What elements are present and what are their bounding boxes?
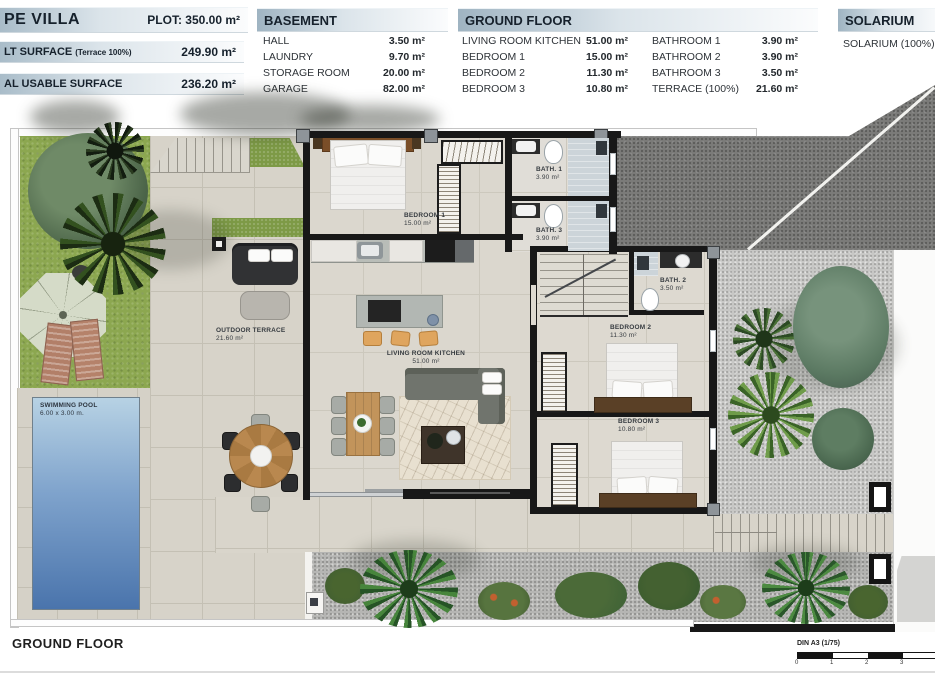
scale-segment <box>868 653 903 658</box>
island-sink <box>427 314 439 326</box>
wall <box>709 246 717 514</box>
sofa-pillow <box>271 249 293 262</box>
wardrobe <box>441 140 503 164</box>
wall <box>505 131 512 252</box>
wall <box>303 234 523 240</box>
scale-tick: 3 <box>900 660 903 666</box>
bath3-toilet <box>544 204 563 228</box>
title-bar: PE VILLA PLOT: 350.00 m² <box>0 7 248 33</box>
list-item: BEDROOM 310.80 m² <box>462 83 628 99</box>
shower-fixture <box>596 141 607 155</box>
dining-chair <box>331 396 347 414</box>
bedroom1-label: BEDROOM 1 15.00 m² <box>404 212 445 229</box>
strip-palm-bush <box>360 550 458 628</box>
staircase <box>540 254 628 317</box>
dining-chair <box>379 396 395 414</box>
scale-segment <box>798 653 833 658</box>
terrace-lamp-inner <box>216 241 222 247</box>
table-vase <box>446 430 461 445</box>
floor-title: GROUND FLOOR <box>12 636 124 651</box>
strip-palm-bush <box>762 552 850 624</box>
bath2-toilet <box>641 288 659 311</box>
wall <box>609 131 617 256</box>
solarium-title: SOLARIUM <box>845 13 914 28</box>
wall-pillar <box>424 129 438 143</box>
plot-value: PLOT: 350.00 m² <box>147 13 240 27</box>
pool-label: SWIMMING POOL 6.00 x 3.00 m. <box>40 402 98 419</box>
kitchen-cabinet <box>389 240 423 262</box>
scale-segment <box>903 653 935 658</box>
island-cooktop <box>368 300 401 322</box>
bed-bench <box>594 397 692 413</box>
flower-bush <box>478 582 530 620</box>
kitchen-sink-basin <box>361 245 379 256</box>
driveway-seam <box>747 86 935 250</box>
floor-plan-sheet: PE VILLA PLOT: 350.00 m² LT SURFACE (Ter… <box>0 0 935 682</box>
dining-chair <box>331 438 347 456</box>
basement-list: HALL3.50 m² LAUNDRY9.70 m² STORAGE ROOM2… <box>263 35 425 99</box>
bath3-label: BATH. 3 3.90 m² <box>536 227 562 244</box>
tv-screen <box>430 492 510 494</box>
scale-bar <box>797 652 935 659</box>
strip-bush <box>848 585 888 619</box>
parasol-pole <box>59 311 67 319</box>
villa-title: PE VILLA <box>4 11 80 29</box>
page-bottom-rule <box>0 671 935 673</box>
plot-boundary-bottom <box>10 619 694 627</box>
wall <box>303 131 621 138</box>
window <box>610 153 616 175</box>
driveway <box>616 85 935 250</box>
list-item: HALL3.50 m² <box>263 35 425 51</box>
terrace-label: OUTDOOR TERRACE 21.60 m² <box>216 327 285 344</box>
strip-bush <box>325 568 365 604</box>
scale-tick: 2 <box>865 660 868 666</box>
patio-chair <box>251 496 270 512</box>
dining-chair <box>379 438 395 456</box>
bath1-toilet <box>544 140 563 164</box>
ground-floor-col1: LIVING ROOM KITCHEN51.00 m² BEDROOM 115.… <box>462 35 628 99</box>
list-item: STORAGE ROOM20.00 m² <box>263 67 425 83</box>
utility-box-inner <box>310 598 318 606</box>
window <box>710 330 716 352</box>
bath2-basin <box>675 254 690 268</box>
kitchen-stove <box>425 240 455 262</box>
wardrobe <box>541 352 567 413</box>
built-surface-note: (Terrace 100%) <box>75 48 131 57</box>
dining-chair <box>379 417 395 435</box>
wardrobe <box>551 443 578 507</box>
window <box>710 428 716 450</box>
living-label: LIVING ROOM KITCHEN 51.00 m² <box>378 350 474 367</box>
stair-rail <box>583 254 584 315</box>
scale-segment <box>833 653 868 658</box>
basement-title: BASEMENT <box>264 13 337 28</box>
strip-bush <box>638 562 700 610</box>
yucca-plant <box>728 372 814 458</box>
window <box>610 207 616 232</box>
bed-pillow <box>333 143 369 167</box>
wall <box>629 310 704 315</box>
bath3-basin <box>516 205 536 216</box>
solarium-item: SOLARIUM (100%) <box>843 38 935 50</box>
glass-wall <box>310 492 405 497</box>
planter-box <box>869 482 891 512</box>
planter-box <box>869 554 891 584</box>
bed-bench <box>599 493 697 508</box>
kitchen-cabinet <box>311 240 357 262</box>
patio-table-center <box>250 445 272 467</box>
nightstand <box>313 138 322 149</box>
flower-bush <box>700 585 746 619</box>
sofa-pillow <box>248 249 270 262</box>
list-item: BATHROOM 33.50 m² <box>652 67 798 83</box>
built-surface-bar: LT SURFACE (Terrace 100%) 249.90 m² <box>0 41 244 63</box>
built-surface-label: LT SURFACE <box>4 46 72 58</box>
ground-floor-header: GROUND FLOOR <box>458 8 818 32</box>
shower-fixture <box>596 204 607 218</box>
sofa-pillow <box>482 384 502 395</box>
solarium-header: SOLARIUM <box>838 8 935 32</box>
ground-floor-title: GROUND FLOOR <box>465 13 572 28</box>
bar-stool <box>390 330 410 347</box>
swimming-pool <box>32 397 140 610</box>
fan-palm <box>86 122 144 180</box>
side-palm <box>733 308 795 370</box>
bath2-label: BATH. 2 3.50 m² <box>660 277 686 294</box>
bath1-basin <box>516 141 536 152</box>
bar-stool <box>363 331 382 346</box>
side-path-slab <box>897 556 935 622</box>
usable-surface-label: AL USABLE SURFACE <box>4 78 122 90</box>
wall <box>303 131 310 500</box>
list-item: BATHROOM 23.90 m² <box>652 51 798 67</box>
tv-wall <box>403 489 533 499</box>
wall <box>530 507 717 514</box>
list-item: TERRACE (100%)21.60 m² <box>652 83 798 99</box>
doorway <box>531 285 536 325</box>
walkway-rail <box>715 532 777 533</box>
tree-shadow <box>300 105 440 133</box>
nightstand <box>412 138 421 149</box>
list-item: BATHROOM 13.90 m² <box>652 35 798 51</box>
bedroom2-label: BEDROOM 2 11.30 m² <box>610 324 651 341</box>
kitchen-oven <box>455 240 474 262</box>
strip-bush <box>555 572 627 618</box>
bottom-right-wall <box>690 624 895 632</box>
palm-tree <box>60 193 166 295</box>
table-plant <box>427 433 443 449</box>
wall-pillar <box>707 503 720 516</box>
sofa-pillow <box>482 372 502 383</box>
usable-surface-bar: AL USABLE SURFACE 236.20 m² <box>0 73 244 95</box>
bar-stool <box>418 330 438 347</box>
side-tree <box>793 266 889 388</box>
dining-chair <box>331 417 347 435</box>
bedroom3-label: BEDROOM 3 10.80 m² <box>618 418 659 435</box>
list-item: BEDROOM 115.00 m² <box>462 51 628 67</box>
scale-tick: 0 <box>795 660 798 666</box>
built-surface-value: 249.90 m² <box>181 45 236 59</box>
ottoman <box>240 291 290 320</box>
wall-pillar <box>296 129 310 143</box>
basement-header: BASEMENT <box>257 8 448 32</box>
centerpiece-plant <box>357 418 366 427</box>
wall-pillar <box>707 246 720 259</box>
scale-tick: 1 <box>830 660 833 666</box>
list-item: BEDROOM 211.30 m² <box>462 67 628 83</box>
scale-label: DIN A3 (1/75) <box>797 640 840 647</box>
bath1-label: BATH. 1 3.90 m² <box>536 166 562 183</box>
list-item: LAUNDRY9.70 m² <box>263 51 425 67</box>
usable-surface-value: 236.20 m² <box>181 77 236 91</box>
shower-fixture <box>637 256 649 270</box>
side-bush <box>812 408 874 470</box>
bed-pillow <box>367 144 402 167</box>
list-item: LIVING ROOM KITCHEN51.00 m² <box>462 35 628 51</box>
ground-floor-col2: BATHROOM 13.90 m² BATHROOM 23.90 m² BATH… <box>652 35 798 99</box>
